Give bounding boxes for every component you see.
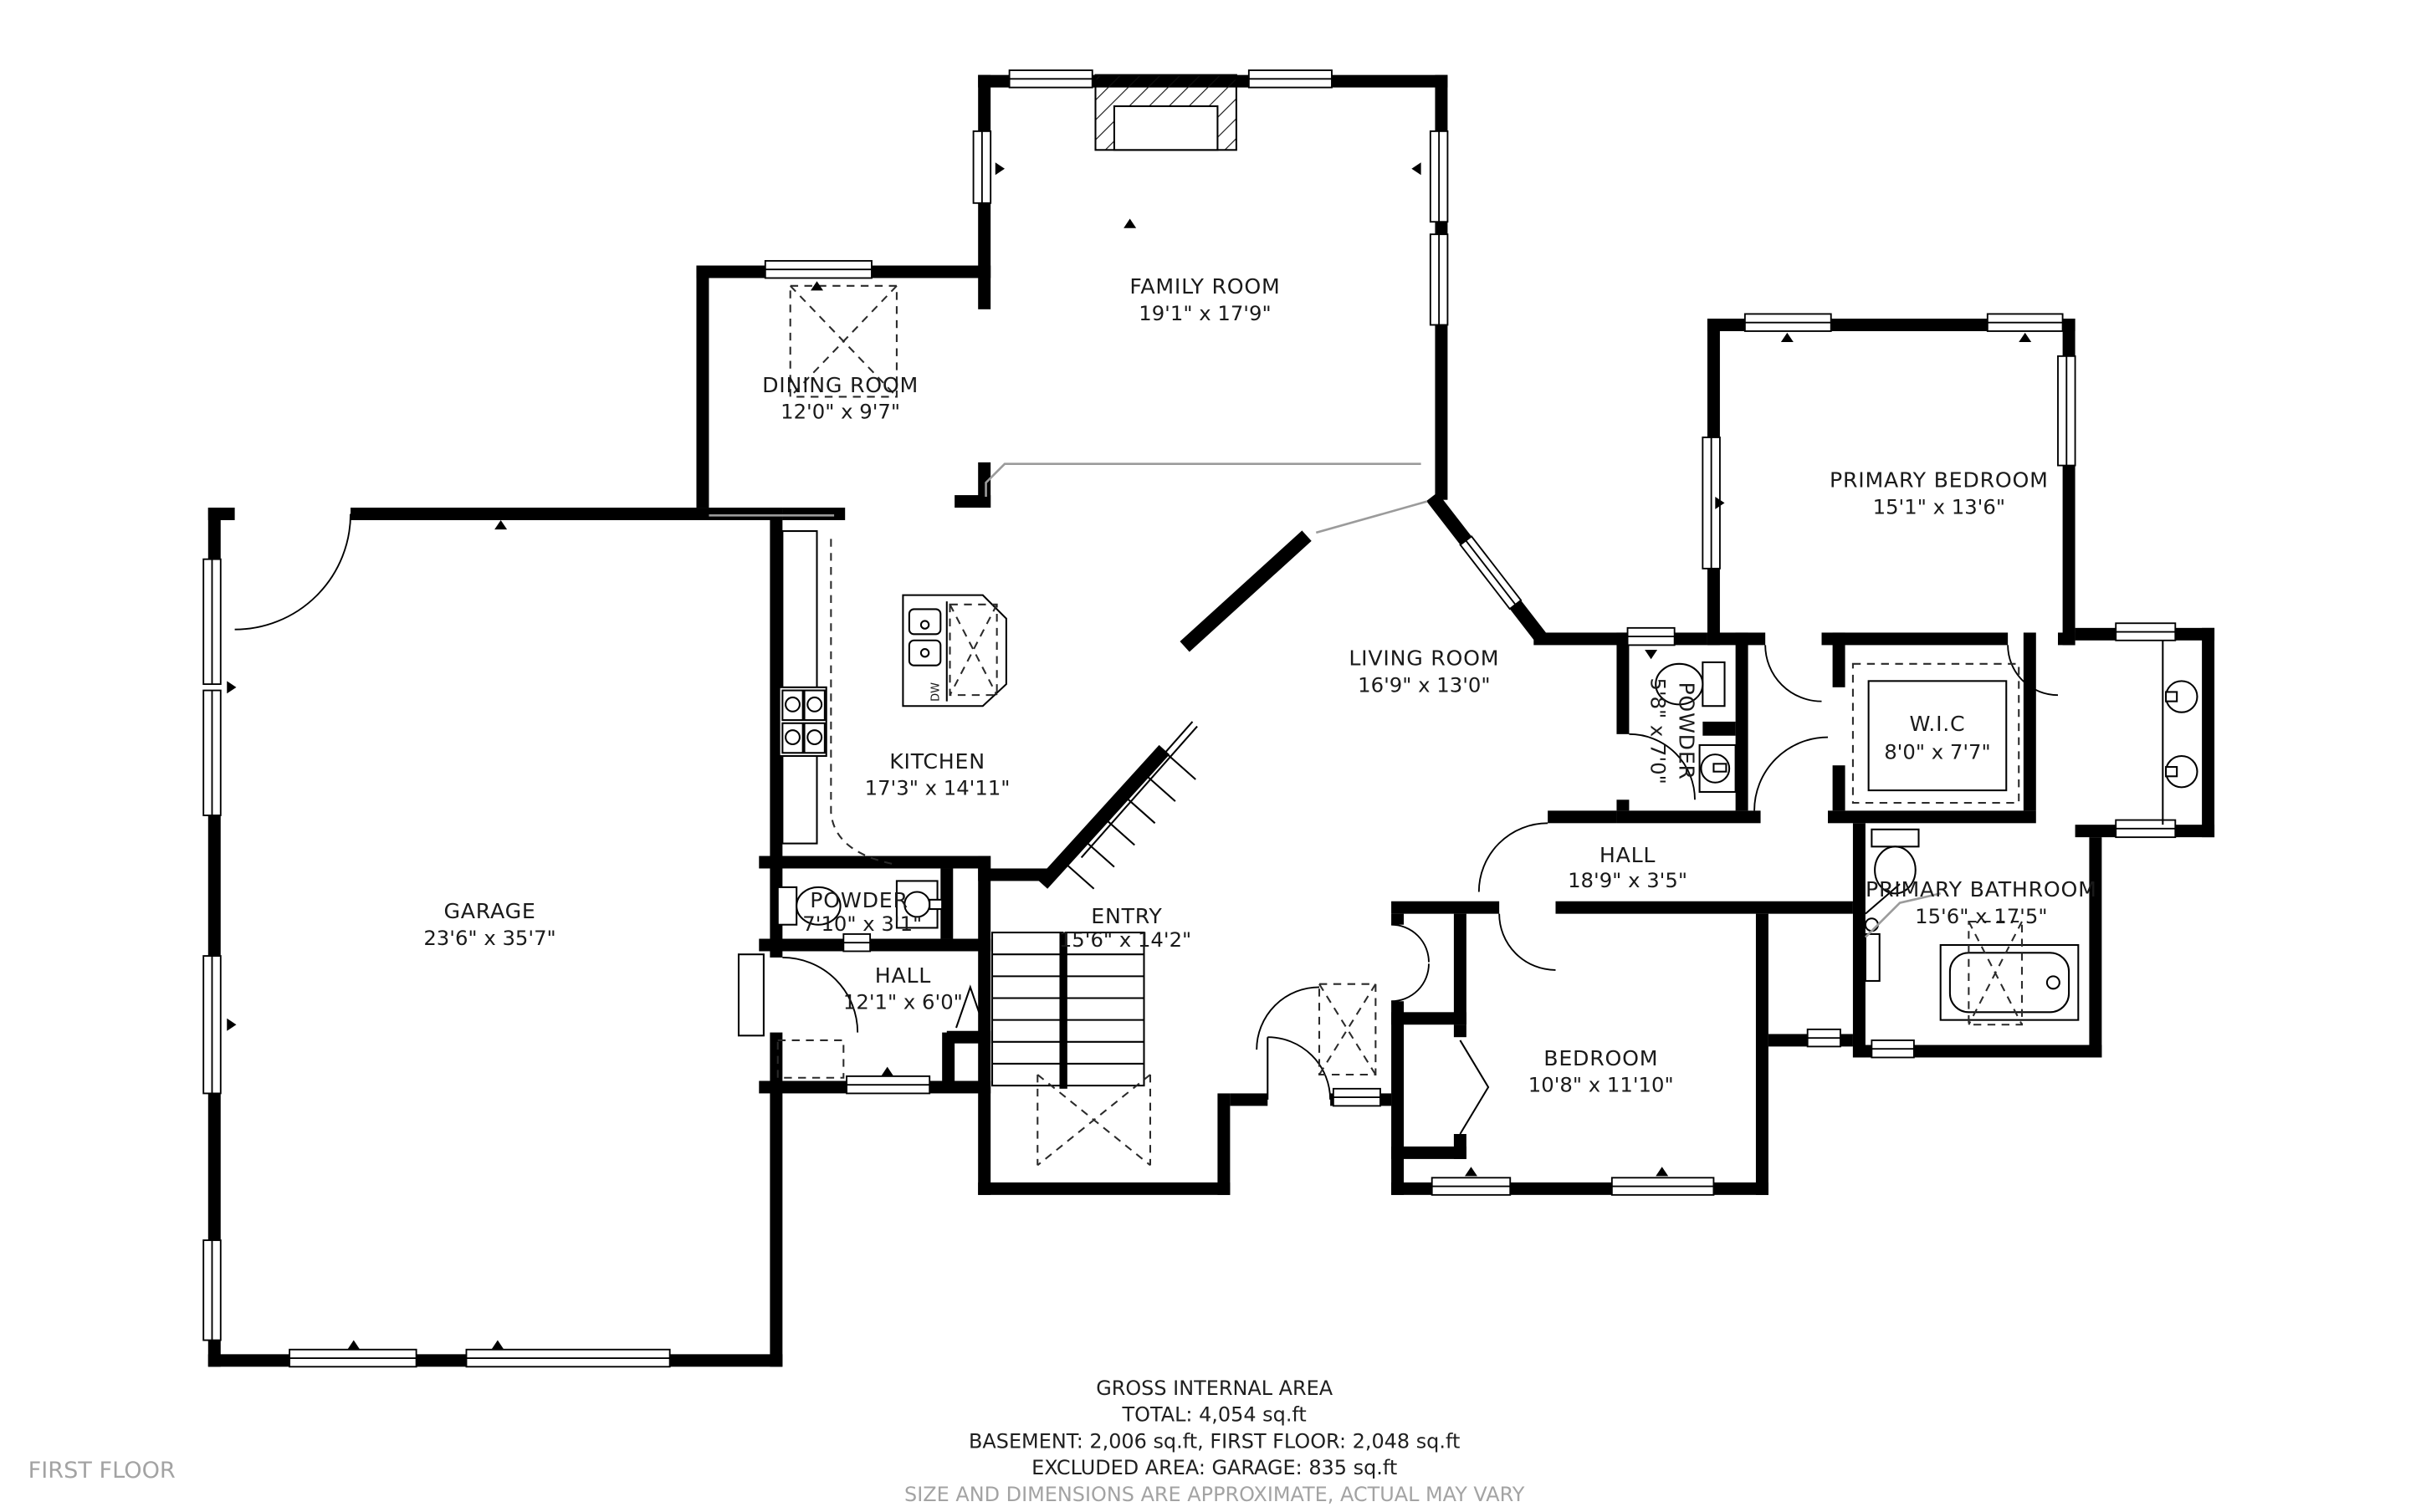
window	[1628, 628, 1675, 646]
window	[1431, 234, 1448, 324]
room-label-entry: ENTRY	[1091, 904, 1162, 928]
room-label-powder-lower: POWDER	[810, 888, 908, 912]
room-label-living: LIVING ROOM	[1349, 646, 1499, 671]
room-dims-primary-bathroom: 15'6" x 17'5"	[1915, 904, 2047, 928]
window	[847, 1076, 929, 1094]
front-door-arc	[1267, 1037, 1330, 1100]
window	[1249, 70, 1332, 88]
floor-label: FIRST FLOOR	[28, 1458, 176, 1484]
window	[289, 1350, 417, 1367]
room-dims-wic: 8'0" x 7'7"	[1884, 740, 1990, 764]
dishwasher-label: DW	[929, 682, 942, 702]
footer-floors: BASEMENT: 2,006 sq.ft, FIRST FLOOR: 2,04…	[969, 1429, 1460, 1453]
window	[1988, 314, 2063, 331]
room-label-family: FAMILY ROOM	[1129, 274, 1280, 299]
room-label-primary-bathroom: PRIMARY BATHROOM	[1866, 877, 2097, 902]
room-label-wic: W.I.C	[1909, 712, 1965, 736]
room-dims-hall-long: 18'9" x 3'5"	[1568, 868, 1687, 892]
room-label-dining: DINING ROOM	[762, 373, 919, 397]
storage-dash	[778, 1040, 844, 1078]
kitchen-island-icon: DW	[903, 595, 1006, 707]
window	[2116, 820, 2175, 838]
room-dims-bedroom: 10'8" x 11'10"	[1528, 1073, 1674, 1097]
stair-rail	[1059, 932, 1067, 1089]
window	[203, 691, 221, 815]
window	[1871, 1040, 1914, 1058]
room-dims-living: 16'9" x 13'0"	[1358, 672, 1490, 697]
room-dims-dining: 12'0" x 9'7"	[781, 400, 900, 424]
bedroom-primary-door-arc	[1765, 645, 1821, 701]
room-dims-family: 19'1" x 17'9"	[1139, 301, 1271, 325]
room-label-primary-bedroom: PRIMARY BEDROOM	[1830, 468, 2049, 493]
basement-stair	[1066, 722, 1197, 889]
footer: GROSS INTERNAL AREA TOTAL: 4,054 sq.ft B…	[904, 1377, 1525, 1506]
room-label-bedroom: BEDROOM	[1543, 1046, 1658, 1070]
footer-title: GROSS INTERNAL AREA	[1096, 1377, 1333, 1400]
vestibule-door-arc	[1754, 738, 1828, 811]
room-dims-hall-small: 12'1" x 6'0"	[843, 990, 963, 1014]
window	[1745, 314, 1831, 331]
room-label-hall-small: HALL	[875, 963, 931, 988]
room-dims-kitchen: 17'3" x 14'11"	[865, 776, 1011, 800]
window	[765, 261, 872, 278]
bifold-closet-door	[1460, 1040, 1488, 1134]
window	[1808, 1029, 1840, 1047]
window	[203, 956, 221, 1093]
sink-icon	[1700, 745, 1736, 792]
window	[466, 1350, 669, 1367]
double-vanity	[2163, 641, 2197, 825]
closet-double-doors	[1391, 925, 1429, 1002]
room-label-hall-long: HALL	[1599, 843, 1656, 867]
room-dims-entry: 15'6" x 14'2"	[1059, 927, 1191, 952]
garage-hall-door	[739, 954, 857, 1035]
room-dims-powder-lower: 7'10" x 3'1"	[802, 912, 922, 936]
footer-total: TOTAL: 4,054 sq.ft	[1122, 1403, 1307, 1427]
floor-plan-page: DW	[0, 0, 2421, 1512]
room-label-powder-upper: POWDER	[1674, 682, 1698, 779]
room-dims-garage: 23'6" x 35'7"	[423, 926, 555, 950]
room-dims-powder-upper: 5'8" x 7'0"	[1646, 677, 1671, 784]
room-dims-primary-bedroom: 15'1" x 13'6"	[1873, 495, 2005, 519]
room-label-kitchen: KITCHEN	[889, 749, 985, 774]
bedroom-door-arc	[1499, 914, 1555, 970]
footer-excluded: EXCLUDED AREA: GARAGE: 835 sq.ft	[1031, 1456, 1397, 1479]
footer-disclaimer: SIZE AND DIMENSIONS ARE APPROXIMATE, ACT…	[904, 1483, 1525, 1506]
bathtub-icon	[1941, 922, 2079, 1024]
room-label-garage: GARAGE	[443, 899, 535, 923]
window	[1431, 131, 1448, 222]
windows	[203, 70, 2175, 1366]
window-diagonal	[1461, 536, 1522, 609]
window	[2058, 356, 2076, 466]
window	[1432, 1177, 1511, 1195]
room-labels: FAMILY ROOM 19'1" x 17'9" DINING ROOM 12…	[423, 274, 2096, 1096]
window	[1333, 1089, 1380, 1106]
pocket-door	[843, 934, 870, 952]
fireplace-icon	[1096, 75, 1236, 151]
vanity-divider	[1702, 722, 1735, 736]
stove-icon	[780, 687, 827, 756]
garage-door-arc	[235, 513, 351, 629]
hall-long-door-arc	[1479, 823, 1548, 891]
window	[2116, 623, 2175, 641]
entry-closet	[1319, 984, 1375, 1075]
window	[1612, 1177, 1714, 1195]
window	[203, 1240, 221, 1341]
stair-direction-arrow	[1037, 1075, 1150, 1165]
window	[203, 559, 221, 684]
window	[974, 131, 991, 203]
window	[1010, 70, 1093, 88]
floor-plan-canvas: DW	[0, 0, 2421, 1512]
